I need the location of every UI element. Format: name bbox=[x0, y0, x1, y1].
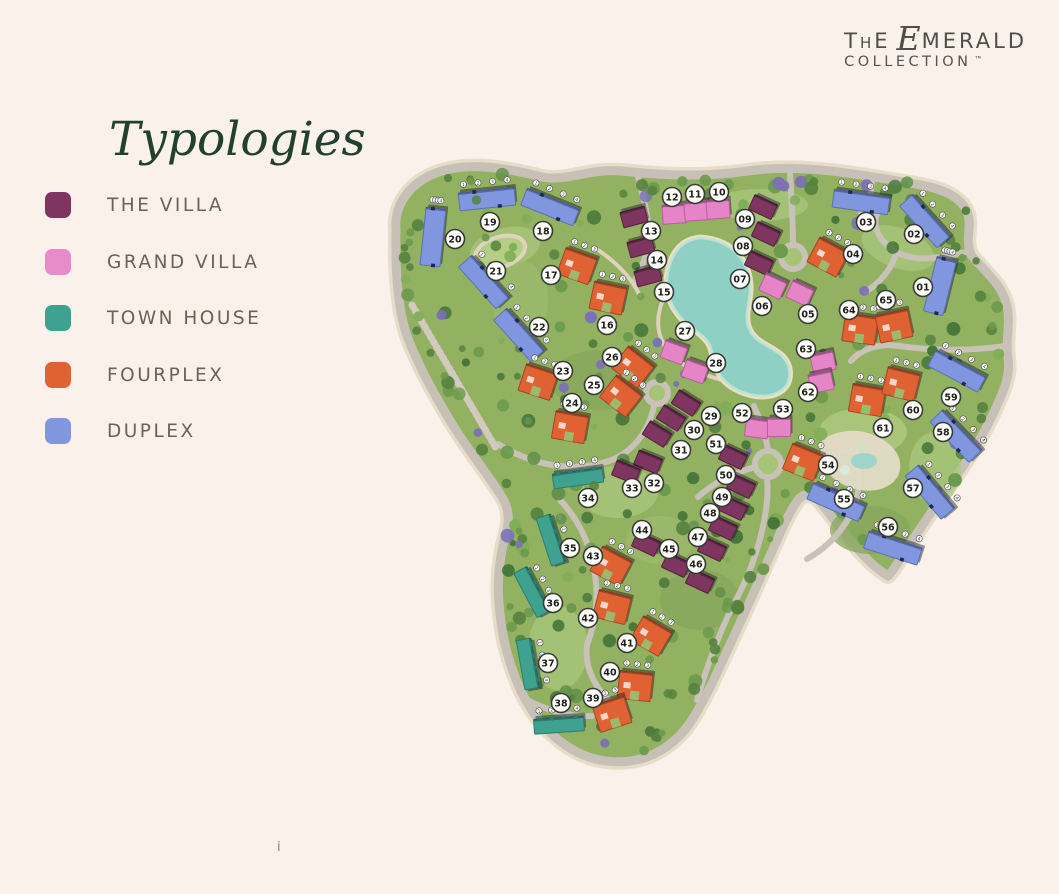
map-marker-49: 49 bbox=[713, 488, 732, 507]
map-marker-22: 22 bbox=[530, 318, 549, 337]
map-marker-47: 47 bbox=[689, 528, 708, 547]
svg-text:52: 52 bbox=[735, 408, 748, 419]
svg-text:45: 45 bbox=[662, 544, 675, 555]
legend-swatch-3 bbox=[45, 362, 71, 388]
map-marker-52: 52 bbox=[733, 404, 752, 423]
svg-text:57: 57 bbox=[906, 483, 919, 494]
building-fourplex bbox=[848, 380, 888, 417]
map-marker-31: 31 bbox=[672, 441, 691, 460]
svg-text:42: 42 bbox=[581, 613, 594, 624]
svg-text:14: 14 bbox=[650, 255, 664, 266]
map-marker-33: 33 bbox=[623, 479, 642, 498]
svg-text:61: 61 bbox=[876, 423, 889, 434]
svg-text:53: 53 bbox=[776, 404, 789, 415]
brand-logo-line2: COLLECTION™ bbox=[844, 55, 1027, 70]
map-marker-24: 24 bbox=[563, 394, 582, 413]
building-town-house bbox=[533, 713, 586, 735]
amenity-pool bbox=[851, 453, 877, 469]
map-marker-59: 59 bbox=[942, 388, 961, 407]
map-marker-61: 61 bbox=[874, 419, 893, 438]
svg-text:50: 50 bbox=[719, 470, 733, 481]
map-marker-09: 09 bbox=[736, 210, 755, 229]
legend-item-the-villa: THE VILLA bbox=[45, 192, 224, 218]
map-marker-62: 62 bbox=[799, 383, 818, 402]
legend-label-town-house: TOWN HOUSE bbox=[107, 308, 261, 329]
svg-text:48: 48 bbox=[703, 508, 717, 519]
svg-text:12: 12 bbox=[665, 192, 678, 203]
page-title: Typologies bbox=[109, 112, 366, 167]
svg-text:15: 15 bbox=[657, 287, 670, 298]
map-marker-34: 34 bbox=[579, 489, 598, 508]
map-marker-06: 06 bbox=[753, 297, 772, 316]
map-marker-38: 38 bbox=[552, 694, 571, 713]
svg-text:32: 32 bbox=[647, 478, 660, 489]
svg-text:06: 06 bbox=[755, 301, 769, 312]
map-marker-12: 12 bbox=[663, 188, 682, 207]
svg-text:10: 10 bbox=[712, 187, 726, 198]
svg-text:51: 51 bbox=[709, 439, 722, 450]
brand-logo: THEEMERALD COLLECTION™ bbox=[844, 26, 1027, 70]
svg-text:34: 34 bbox=[581, 493, 595, 504]
map-marker-57: 57 bbox=[904, 479, 923, 498]
footnote-mark: i bbox=[277, 840, 281, 855]
map-marker-16: 16 bbox=[598, 316, 617, 335]
map-marker-41: 41 bbox=[618, 634, 637, 653]
map-marker-56: 56 bbox=[879, 518, 898, 537]
svg-text:19: 19 bbox=[483, 217, 496, 228]
svg-text:63: 63 bbox=[799, 344, 812, 355]
map-marker-03: 03 bbox=[857, 213, 876, 232]
map-marker-21: 21 bbox=[487, 262, 506, 281]
svg-text:46: 46 bbox=[689, 559, 703, 570]
svg-text:60: 60 bbox=[906, 405, 920, 416]
map-marker-07: 07 bbox=[731, 270, 750, 289]
map-marker-54: 54 bbox=[819, 456, 838, 475]
map-marker-58: 58 bbox=[934, 423, 953, 442]
svg-text:56: 56 bbox=[881, 522, 895, 533]
legend-item-town-house: TOWN HOUSE bbox=[45, 305, 261, 331]
svg-text:11: 11 bbox=[688, 189, 701, 200]
map-marker-43: 43 bbox=[584, 547, 603, 566]
legend-swatch-1 bbox=[45, 249, 71, 275]
svg-text:28: 28 bbox=[709, 358, 723, 369]
svg-text:47: 47 bbox=[691, 532, 704, 543]
svg-text:07: 07 bbox=[733, 274, 746, 285]
map-marker-27: 27 bbox=[676, 322, 695, 341]
svg-text:22: 22 bbox=[532, 322, 545, 333]
svg-text:24: 24 bbox=[565, 398, 579, 409]
map-marker-18: 18 bbox=[534, 222, 553, 241]
map-marker-01: 01 bbox=[914, 278, 933, 297]
svg-text:17: 17 bbox=[544, 270, 557, 281]
svg-text:54: 54 bbox=[821, 460, 835, 471]
svg-text:01: 01 bbox=[916, 282, 929, 293]
svg-text:16: 16 bbox=[600, 320, 614, 331]
map-marker-42: 42 bbox=[579, 609, 598, 628]
legend-item-grand-villa: GRAND VILLA bbox=[45, 249, 259, 275]
legend-swatch-4 bbox=[45, 418, 71, 444]
svg-text:23: 23 bbox=[556, 366, 569, 377]
svg-text:59: 59 bbox=[944, 392, 957, 403]
map-marker-20: 20 bbox=[446, 230, 465, 249]
map-marker-14: 14 bbox=[648, 251, 667, 270]
svg-text:31: 31 bbox=[674, 445, 687, 456]
map-marker-48: 48 bbox=[701, 504, 720, 523]
svg-text:18: 18 bbox=[536, 226, 550, 237]
svg-text:08: 08 bbox=[736, 241, 750, 252]
svg-text:58: 58 bbox=[936, 427, 950, 438]
brand-logo-line1: THEEMERALD bbox=[844, 26, 1027, 52]
map-marker-63: 63 bbox=[797, 340, 816, 359]
svg-text:21: 21 bbox=[489, 266, 502, 277]
map-marker-25: 25 bbox=[585, 376, 604, 395]
map-marker-32: 32 bbox=[645, 474, 664, 493]
map-marker-08: 08 bbox=[734, 237, 753, 256]
map-marker-51: 51 bbox=[707, 435, 726, 454]
map-marker-04: 04 bbox=[844, 245, 863, 264]
map-marker-29: 29 bbox=[702, 407, 721, 426]
svg-text:35: 35 bbox=[563, 543, 576, 554]
svg-text:27: 27 bbox=[678, 326, 691, 337]
legend-item-duplex: DUPLEX bbox=[45, 418, 196, 444]
map-marker-39: 39 bbox=[584, 689, 603, 708]
svg-text:26: 26 bbox=[605, 352, 619, 363]
map-marker-17: 17 bbox=[542, 266, 561, 285]
map-marker-28: 28 bbox=[707, 354, 726, 373]
svg-text:20: 20 bbox=[448, 234, 462, 245]
map-marker-45: 45 bbox=[660, 540, 679, 559]
svg-text:13: 13 bbox=[644, 226, 657, 237]
legend-label-duplex: DUPLEX bbox=[107, 421, 196, 442]
svg-text:44: 44 bbox=[635, 525, 649, 536]
logo-word-merald: MERALD bbox=[922, 31, 1027, 52]
map-marker-65: 65 bbox=[877, 291, 896, 310]
svg-text:43: 43 bbox=[586, 551, 599, 562]
logo-script-e: E bbox=[897, 26, 924, 52]
svg-text:62: 62 bbox=[801, 387, 814, 398]
legend-label-fourplex: FOURPLEX bbox=[107, 365, 224, 386]
map-marker-23: 23 bbox=[554, 362, 573, 381]
legend-swatch-0 bbox=[45, 192, 71, 218]
svg-text:49: 49 bbox=[715, 492, 728, 503]
map-marker-11: 11 bbox=[686, 185, 705, 204]
svg-text:25: 25 bbox=[587, 380, 600, 391]
svg-text:65: 65 bbox=[879, 295, 892, 306]
svg-text:40: 40 bbox=[603, 667, 617, 678]
map-marker-40: 40 bbox=[601, 663, 620, 682]
legend-swatch-2 bbox=[45, 305, 71, 331]
map-marker-13: 13 bbox=[642, 222, 661, 241]
svg-text:37: 37 bbox=[541, 658, 554, 669]
page: 1234123412341234123412341234123412341234… bbox=[0, 0, 1059, 894]
logo-word-the: T bbox=[844, 31, 860, 52]
map-marker-44: 44 bbox=[633, 521, 652, 540]
svg-text:30: 30 bbox=[687, 425, 701, 436]
map-marker-35: 35 bbox=[561, 539, 580, 558]
map-marker-26: 26 bbox=[603, 348, 622, 367]
legend-label-grand-villa: GRAND VILLA bbox=[107, 252, 259, 273]
legend-label-the-villa: THE VILLA bbox=[107, 195, 224, 216]
svg-text:03: 03 bbox=[859, 217, 872, 228]
map-marker-64: 64 bbox=[840, 301, 859, 320]
svg-text:09: 09 bbox=[738, 214, 751, 225]
svg-text:64: 64 bbox=[842, 305, 856, 316]
logo-word-collection: COLLECTION bbox=[844, 55, 971, 70]
svg-text:29: 29 bbox=[704, 411, 717, 422]
svg-text:55: 55 bbox=[837, 494, 850, 505]
map-marker-60: 60 bbox=[904, 401, 923, 420]
map-marker-55: 55 bbox=[835, 490, 854, 509]
svg-text:38: 38 bbox=[554, 698, 568, 709]
map-marker-46: 46 bbox=[687, 555, 706, 574]
svg-text:39: 39 bbox=[586, 693, 599, 704]
svg-text:02: 02 bbox=[907, 229, 920, 240]
map-marker-53: 53 bbox=[774, 400, 793, 419]
map-marker-50: 50 bbox=[717, 466, 736, 485]
svg-text:33: 33 bbox=[625, 483, 638, 494]
map-marker-10: 10 bbox=[710, 183, 729, 202]
svg-text:04: 04 bbox=[846, 249, 860, 260]
trademark-symbol: ™ bbox=[975, 56, 987, 64]
legend-item-fourplex: FOURPLEX bbox=[45, 362, 224, 388]
map-marker-36: 36 bbox=[544, 594, 563, 613]
map-marker-05: 05 bbox=[799, 305, 818, 324]
map-marker-19: 19 bbox=[481, 213, 500, 232]
svg-text:05: 05 bbox=[801, 309, 814, 320]
svg-text:36: 36 bbox=[546, 598, 560, 609]
map-marker-30: 30 bbox=[685, 421, 704, 440]
map-marker-37: 37 bbox=[539, 654, 558, 673]
svg-text:41: 41 bbox=[620, 638, 633, 649]
map-marker-02: 02 bbox=[905, 225, 924, 244]
map-marker-15: 15 bbox=[655, 283, 674, 302]
